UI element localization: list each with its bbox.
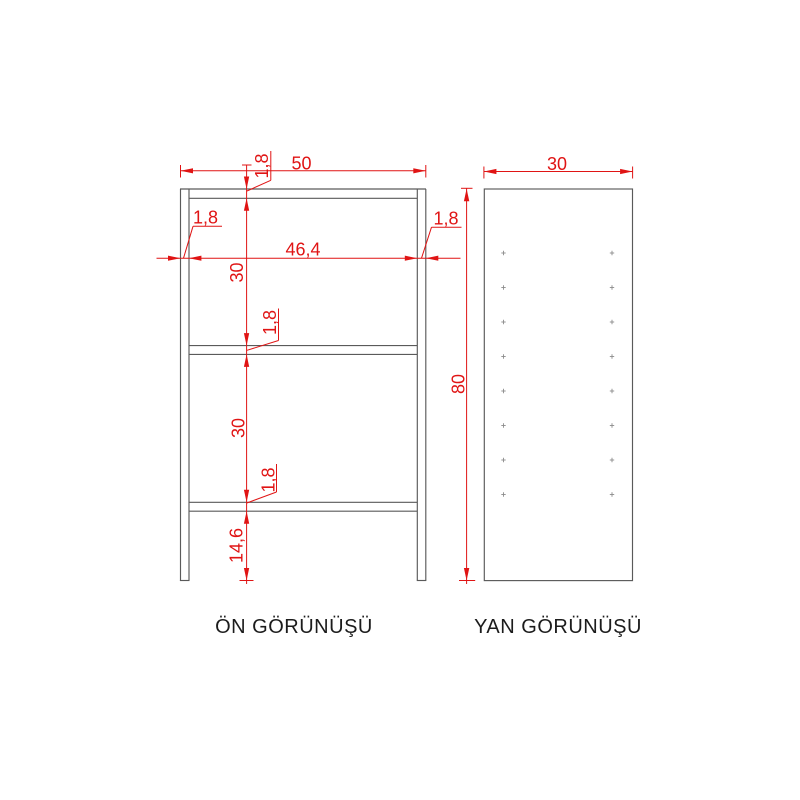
dim-upper-shelf-gap-value: 30 xyxy=(227,262,247,282)
dim-middle-shelf-thickness-value: 1,8 xyxy=(260,310,280,335)
technical-drawing-canvas: 50 46,4 1,8 1,8 1,8 30 xyxy=(0,0,800,800)
dimension-side-depth: 30 xyxy=(484,154,633,179)
front-view-label: ÖN GÖRÜNÜŞÜ xyxy=(215,616,373,638)
dim-foot-height-value: 14,6 xyxy=(227,528,247,563)
dim-bottom-shelf-thickness-value: 1,8 xyxy=(259,467,279,492)
dimension-bottom-shelf-thickness: 1,8 xyxy=(247,464,279,503)
dimension-overall-height: 80 xyxy=(449,188,476,584)
dimension-overall-width: 50 xyxy=(181,154,426,178)
dimension-vertical-chain: 1,8 30 1,8 30 1,8 14,6 xyxy=(227,151,281,584)
dim-top-panel-thickness-value: 1,8 xyxy=(252,153,272,178)
dim-overall-height-value: 80 xyxy=(449,374,469,394)
side-view-label: YAN GÖRÜNÜŞÜ xyxy=(474,616,642,638)
dim-inner-width-value: 46,4 xyxy=(285,240,320,260)
side-view-outline xyxy=(484,189,632,581)
dimension-middle-shelf-thickness: 1,8 xyxy=(247,309,280,351)
dim-right-panel-thickness-value: 1,8 xyxy=(433,208,458,228)
dim-side-depth-value: 30 xyxy=(547,154,567,174)
shelf-pin-holes xyxy=(501,251,614,497)
dim-left-panel-thickness-value: 1,8 xyxy=(193,208,218,228)
dimension-inner-width: 46,4 xyxy=(157,240,461,261)
dimension-right-panel-thickness: 1,8 xyxy=(422,208,462,258)
dim-overall-width-value: 50 xyxy=(291,154,311,174)
front-view-shelves xyxy=(189,346,417,512)
dim-lower-shelf-gap-value: 30 xyxy=(229,418,249,438)
